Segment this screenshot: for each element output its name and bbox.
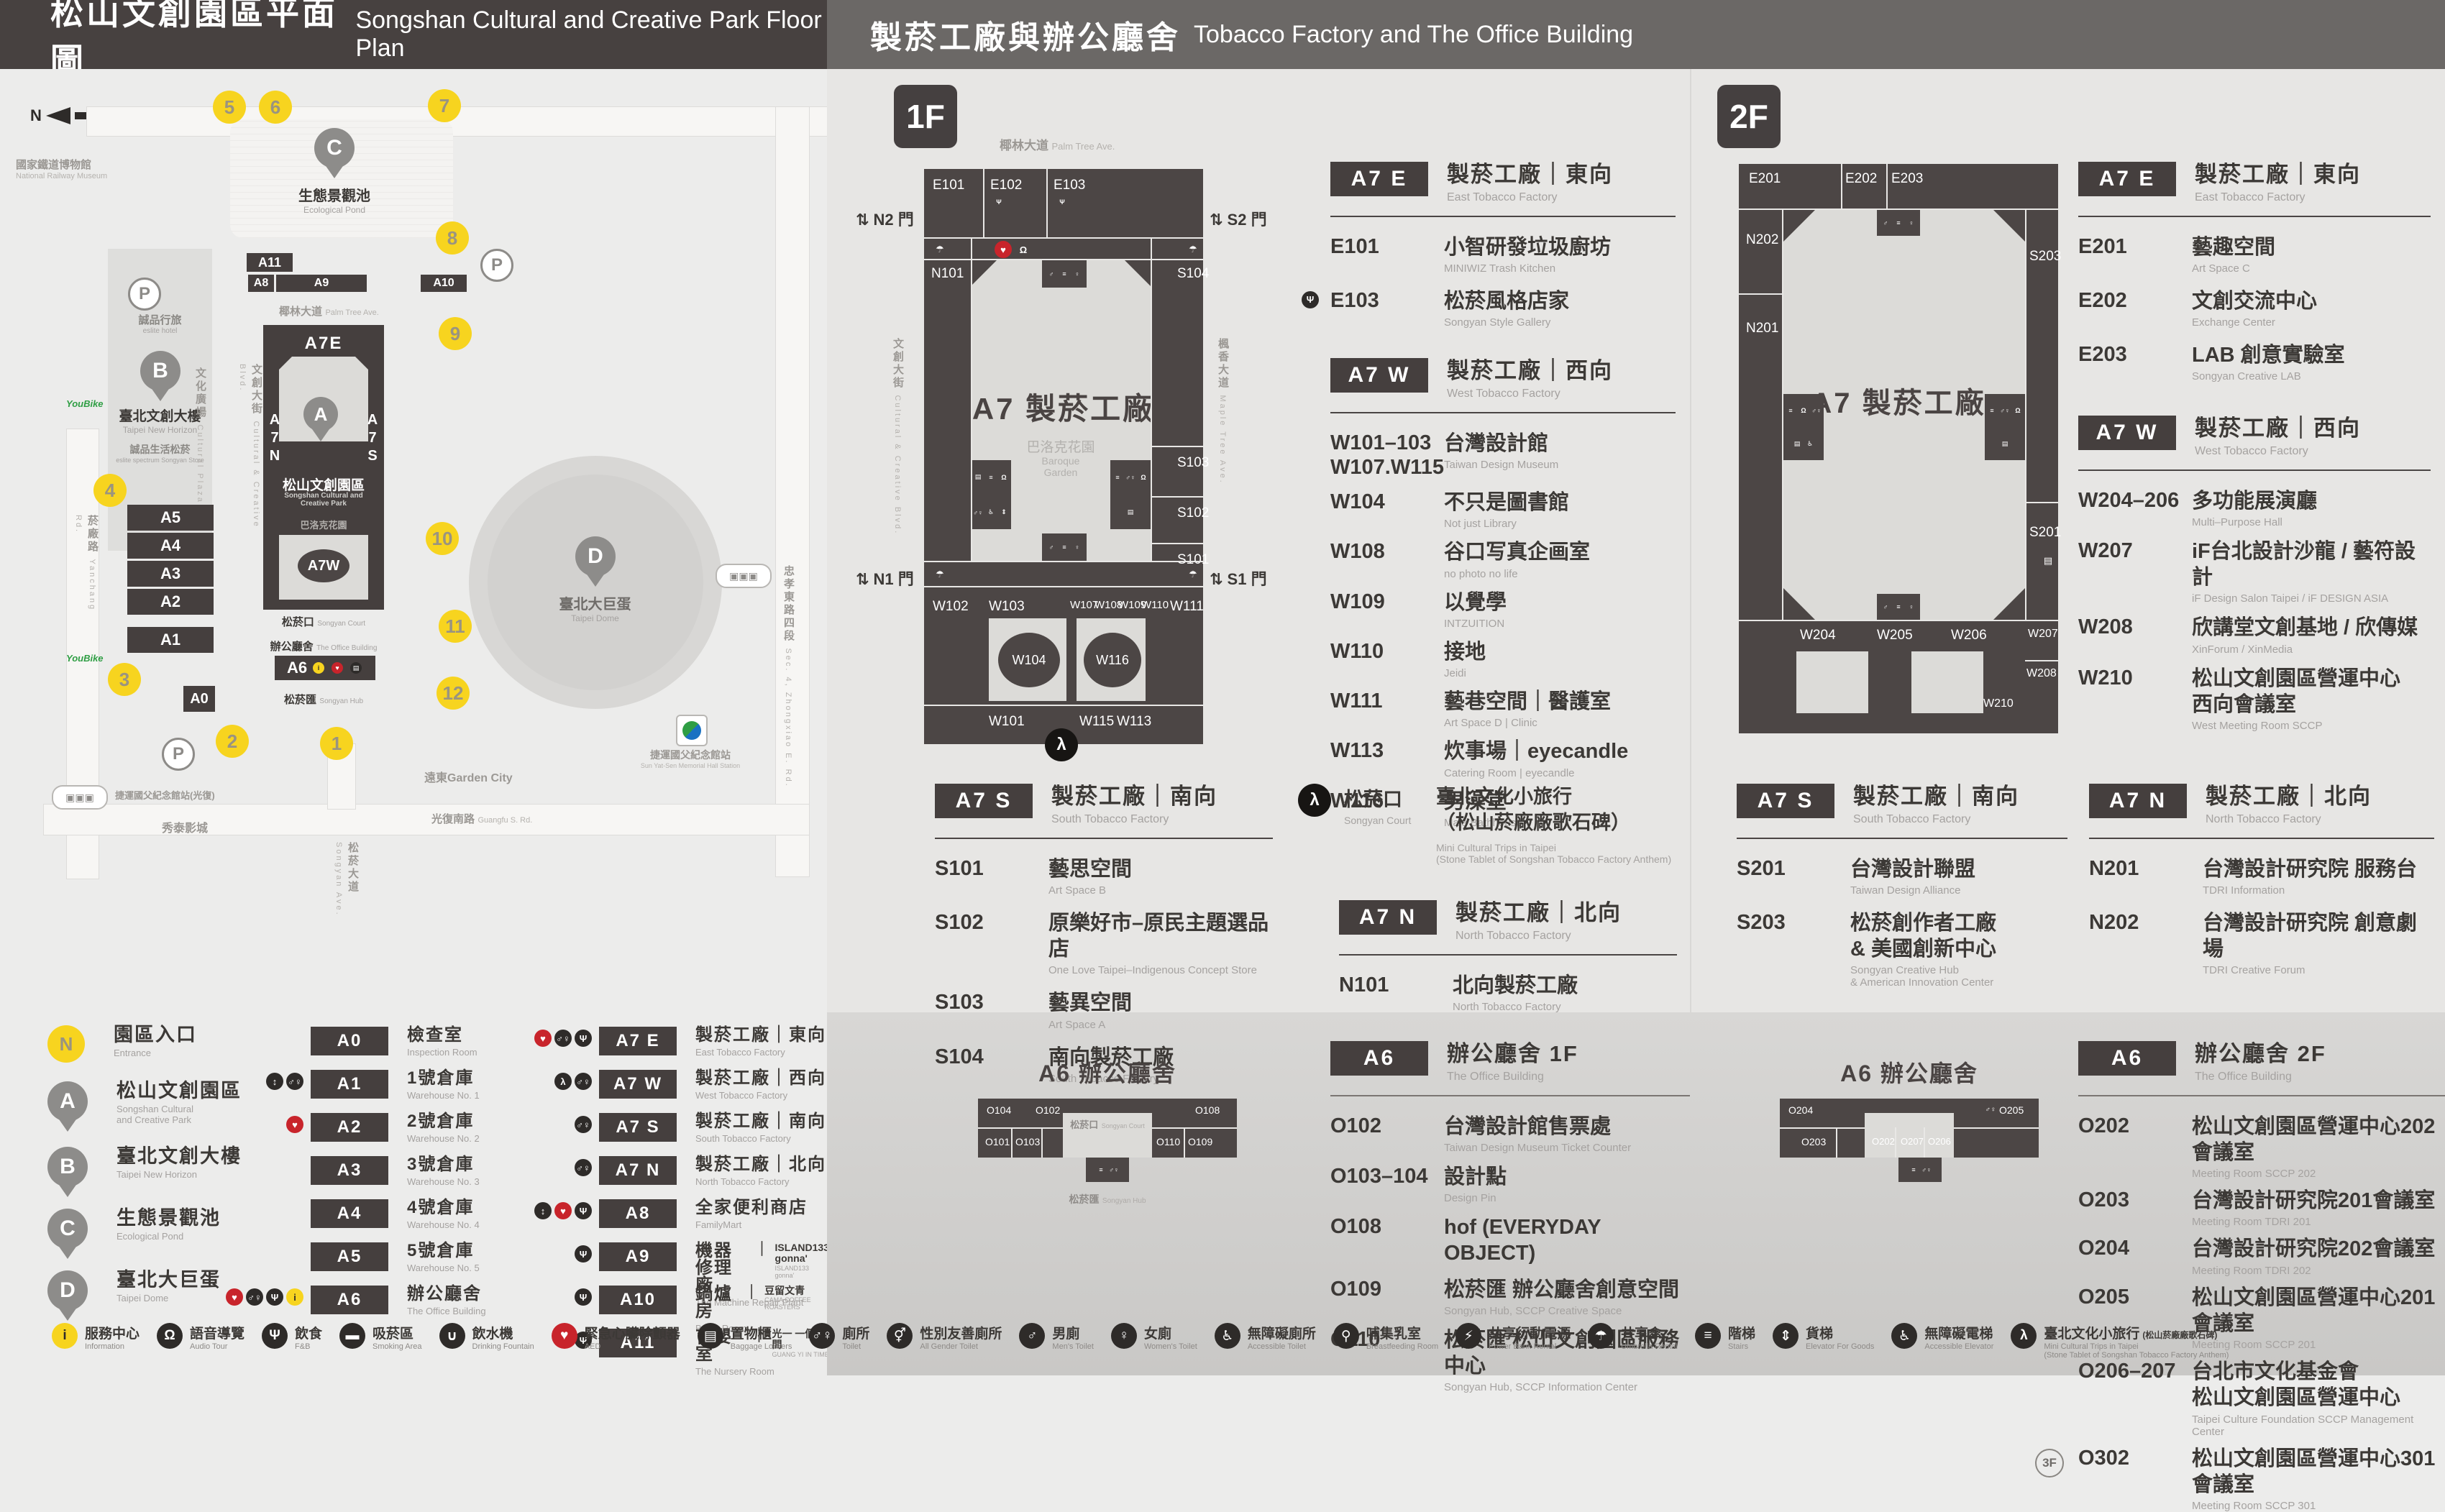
umbrella-icon: ☂ — [931, 566, 949, 583]
songyankou-line2: （松山菸廠廠歌石碑） — [1436, 812, 1630, 833]
building-name-en: Inspection Room — [407, 1047, 477, 1058]
legend-building-row: Ψ A10 鍋爐房 ｜ 豆留文青 CAMA COFFEE ROASTERS Bo… — [599, 1286, 827, 1321]
room-s101: S101 — [1177, 552, 1209, 568]
aed-icon: ♥ — [534, 1030, 552, 1047]
section-badge: A7 N — [1339, 900, 1437, 935]
facility-icon: ♂♀ — [808, 1323, 836, 1349]
room-code: O205 — [2078, 1285, 2192, 1310]
room-w206: W206 — [1951, 628, 1987, 643]
building-a6: A6 i ♥ ▤ — [275, 656, 375, 680]
section-badge: A7 N — [2089, 784, 2187, 818]
entrance-4: 4 — [93, 474, 127, 507]
room-name-en: Multi–Purpose Hall — [2192, 516, 2317, 528]
room-name-en: Meeting Room TDRI 202 — [2192, 1265, 2435, 1277]
building-name-zh: 4號倉庫 — [407, 1199, 474, 1217]
east-core-stub: ≡♂♀ Ω▤ — [1110, 460, 1151, 529]
parking-icon: P — [128, 278, 161, 311]
facility-en: All Gender Toilet — [920, 1342, 1002, 1351]
aed-icon: ♥ — [995, 241, 1012, 258]
room-name-en: TDRI Creative Forum — [2203, 964, 2434, 976]
floor-prefix-badge: 3F — [2035, 1449, 2064, 1477]
building-a1: A1 — [127, 627, 214, 653]
locker-icon: ▤ — [972, 472, 984, 483]
brand-zh: ISLAND133 gonna' — [775, 1242, 827, 1265]
legend-en: Taipei New Horizon — [116, 1169, 242, 1180]
audio-icon: Ω — [157, 1323, 183, 1349]
toilet-icon: ♂♀ — [1125, 472, 1136, 483]
songyan-court-icon: λ — [1298, 784, 1331, 817]
building-a9: A9 — [276, 275, 367, 292]
pin-d-legend: D — [47, 1270, 88, 1311]
row-icons: ♥♂♀Ψi — [224, 1288, 305, 1306]
section-badge: A7 W — [2078, 416, 2176, 450]
building-name-en: North Tobacco Factory — [695, 1176, 826, 1187]
legend-building-row: A0 檢查室 ｜ Inspection Room — [311, 1027, 526, 1063]
aed-icon: ♥ — [226, 1288, 243, 1306]
building-name-zh: 鍋爐房 — [695, 1286, 739, 1320]
floor-plan-poster: { "icon_glyphs":{"info":"i","audio":"Ω",… — [0, 0, 2445, 1375]
row-icons: ↕♥Ψ — [533, 1202, 593, 1219]
accessible-icon: ♿ — [1215, 1323, 1240, 1349]
building-code-badge: A3 — [311, 1156, 388, 1185]
audio-icon: Ω — [2012, 405, 2024, 416]
ccblvd-zh: 文創大街 — [892, 338, 904, 390]
row-icons: ↕♂♀ — [265, 1073, 305, 1090]
section-en: North Tobacco Factory — [2206, 813, 2372, 826]
goods-elevator-icon: ⇕ — [998, 507, 1010, 518]
a7w-oval: A7W — [298, 549, 349, 582]
section-badge: A6 — [2078, 1041, 2176, 1076]
building-a5: A5 — [127, 505, 214, 531]
facility-icon: ♥ — [550, 1323, 579, 1349]
room-name-zh: 藝異空間 — [1048, 990, 1132, 1016]
men-icon: ♂ — [1046, 541, 1057, 553]
pin-b: B — [140, 351, 180, 391]
toilet-icon: ♂♀ — [809, 1323, 835, 1349]
stairs-icon: ≡ — [1908, 1164, 1919, 1176]
entrance-8: 8 — [436, 221, 469, 255]
room-name-en: Meeting Room SCCP 201 — [2192, 1339, 2445, 1351]
legend-en: Songshan Cultural and Creative Park — [116, 1104, 242, 1125]
legend-building-row: λ♂♀ A7 W 製菸工廠｜西向 ｜ West Tobacco Factory — [599, 1070, 827, 1106]
palm-zh: 椰林大道 — [1000, 139, 1048, 152]
directory-row: W101–103 W107.W115 台灣設計館 Taiwan Design M… — [1330, 431, 1676, 481]
palm-en: Palm Tree Ave. — [1051, 141, 1115, 152]
men-icon: ♂ — [1019, 1323, 1045, 1349]
yanchang-rd-label: 菸廠路 Yanchang Rd. — [72, 515, 100, 630]
directory-row: W111 藝巷空間｜醫護室 Art Space D | Clinic — [1330, 689, 1676, 729]
directory-row: W204–206 多功能展演廳 Multi–Purpose Hall — [2078, 488, 2431, 528]
room-e101: E101 — [933, 178, 964, 193]
room-code: W108 — [1330, 539, 1444, 564]
facility-item: ♂ 男廁 Men's Toilet — [1018, 1323, 1094, 1351]
room-name-zh: 松山文創園區營運中心201會議室 — [2192, 1285, 2445, 1337]
stairs-icon: ≡ — [1986, 405, 1998, 416]
toilet-icon: ♂♀ — [1811, 405, 1822, 416]
section-f1-north: A7 N 製菸工廠｜北向 North Tobacco Factory N101 … — [1339, 900, 1677, 1013]
parking-icon: P — [480, 249, 513, 282]
facilities-legend: i 服務中心 Information Ω 語音導覽 Audio Tour Ψ 飲… — [50, 1323, 1582, 1360]
room-name-zh: 藝趣空間 — [2192, 234, 2275, 260]
section-f2-west: A7 W 製菸工廠｜西向 West Tobacco Factory W204–2… — [2078, 416, 2431, 732]
plan-1f-title: A7 製菸工廠 — [934, 385, 1193, 429]
facility-icon: ▤ — [696, 1323, 725, 1349]
pond-label: 生態景觀池 Ecological Pond — [273, 184, 396, 215]
south-lobby-stub: ♂≡♀ — [1877, 594, 1920, 620]
building-name-en: The Nursery Room — [695, 1366, 827, 1375]
room-name-en: Songyan Creative LAB — [2192, 370, 2345, 382]
goods-elevator-icon: ⇕ — [1773, 1323, 1799, 1349]
section-badge: A7 E — [2078, 162, 2176, 196]
songyan-ave-en: Songyan Ave. — [334, 842, 343, 917]
floor-1f-badge: 1F — [894, 85, 957, 148]
locker-icon: ▤ — [1125, 507, 1136, 518]
trips-icon: λ — [2011, 1323, 2037, 1349]
room-e201: E201 — [1749, 171, 1781, 187]
brand-en: CAMA COFFEE ROASTERS — [764, 1296, 827, 1311]
room-o108: O108 — [1195, 1104, 1220, 1116]
room-name-en: Not just Library — [1444, 518, 1569, 530]
entrance-7: 7 — [428, 89, 461, 122]
west-core-stub: ≡Ω ♂♀▤ ♿ — [1783, 394, 1824, 460]
section-badge: A6 — [1330, 1041, 1428, 1076]
parking-icon: P — [162, 738, 195, 771]
park-map-panel: N 國家鐵道博物館 National Railway Museum C 生態景觀… — [0, 69, 827, 1375]
facility-zh: 飲食 — [295, 1323, 322, 1342]
building-code-badge: A7 W — [599, 1070, 677, 1099]
building-name-zh: 製菸工廠｜北向 — [695, 1156, 826, 1173]
building-a3: A3 — [127, 561, 214, 587]
pin-d: D — [575, 536, 616, 577]
guangfu-rd-label: 光復南路 Guangfu S. Rd. — [431, 811, 532, 826]
row-icons: ♥♂♀Ψ — [533, 1030, 593, 1047]
facility-zh: 臺北文化小旅行 — [2044, 1323, 2139, 1342]
facility-en: Women's Toilet — [1144, 1342, 1197, 1351]
room-s103: S103 — [1177, 455, 1209, 471]
facility-zh: 緊急心臟除顫器 — [585, 1323, 680, 1342]
ccblvd-en: Cultural & Creative Blvd. — [893, 395, 902, 535]
entrance-12: 12 — [437, 677, 470, 710]
room-w104-oval: W104 — [998, 633, 1060, 687]
songyan-ave-zh: 松菸大道 — [347, 842, 359, 894]
railway-museum-label: 國家鐵道博物館 National Railway Museum — [16, 157, 124, 180]
divider: ｜ — [744, 1286, 759, 1300]
room-name-zh: hof (EVERYDAY OBJECT) — [1444, 1214, 1690, 1267]
section-badge: A7 S — [1737, 784, 1834, 818]
room-code: E203 — [2078, 342, 2192, 367]
legend-zh: 臺北大巨蛋 — [116, 1270, 221, 1290]
room-name-en: Songyan Hub, SCCP Information Center — [1444, 1381, 1690, 1393]
room-name-zh: 不只是圖書館 — [1444, 490, 1569, 516]
a6-2f-plan: O204 O203 O202 O207 O206 O205 ♂♀ — [1780, 1099, 2039, 1158]
room-name-en: One Love Taipei–Indigenous Concept Store — [1048, 964, 1273, 976]
songyankou-line1: 臺北文化小旅行 — [1436, 786, 1572, 807]
facility-icon: ⇕ — [1771, 1323, 1800, 1349]
women-icon: ♀ — [1071, 541, 1083, 553]
stairs-icon: ≡ — [1893, 601, 1904, 613]
building-code-badge: A7 N — [599, 1156, 677, 1185]
a7n-label: A 7 N — [268, 411, 282, 465]
garden-zh: 巴洛克花園 — [971, 436, 1151, 456]
room-name-zh: LAB 創意實驗室 — [2192, 342, 2345, 368]
toilet-icon: ♂♀ — [1921, 1164, 1932, 1176]
directory-row: O108 hof (EVERYDAY OBJECT) — [1330, 1214, 1690, 1267]
section-zh: 製菸工廠｜南向 — [1853, 784, 2019, 810]
legend-col1: A0 檢查室 ｜ Inspection Room ↕♂♀ A1 1號倉庫 ｜ — [311, 1027, 526, 1321]
water-icon: ∪ — [439, 1323, 465, 1349]
room-name-en: Exchange Center — [2192, 316, 2317, 329]
park-en: Songshan Cultural and Creative Park — [263, 492, 384, 508]
room-name-en: Catering Room | eyecandle — [1444, 767, 1628, 779]
room-o103: O103 — [1015, 1136, 1040, 1147]
w204-court — [1796, 651, 1868, 713]
room-name-zh: 台灣設計研究院 服務台 — [2203, 856, 2417, 882]
row-icons: ♂♀ — [573, 1159, 593, 1176]
mrt-exit-label: 捷運國父紀念館站(光復) — [115, 788, 215, 802]
road-guangfu — [43, 804, 810, 835]
room-code: E103 — [1330, 288, 1444, 313]
audio-icon: Ω — [1138, 472, 1149, 483]
section-f1-west: A7 W 製菸工廠｜西向 West Tobacco Factory W101–1… — [1330, 358, 1676, 829]
toilet-icon: ♂♀ — [575, 1116, 592, 1133]
room-name-zh: 台灣設計館 — [1444, 431, 1558, 457]
building-a11: A11 — [247, 253, 293, 272]
accessible-elevator-icon: ♿ — [1891, 1323, 1917, 1349]
building-name-zh: 辦公廳舍 — [407, 1286, 482, 1303]
legend-col2: ♥♂♀Ψ A7 E 製菸工廠｜東向 ｜ East Tobacco Factory… — [599, 1027, 827, 1365]
section-zh: 製菸工廠｜北向 — [2206, 784, 2372, 810]
toilet-icon: ♂♀ — [286, 1073, 303, 1090]
facility-en: Mini Cultural Trips in Taipei — [2044, 1342, 2229, 1351]
palm-en: Palm Tree Ave. — [325, 308, 378, 317]
umbrella-icon: ☂ — [931, 241, 949, 258]
facility-item: ≡ 階梯 Stairs — [1694, 1323, 1755, 1351]
zhongxiao-rd-label: 忠孝東路四段 Sec. 4, Zhongxiao E. Rd. — [781, 565, 796, 802]
directory-row: O103–104 設計點 Design Pin — [1330, 1164, 1690, 1204]
room-e102: E102 — [990, 178, 1022, 193]
room-code: W110 — [1330, 639, 1444, 664]
facility-item: ♀ 女廁 Women's Toilet — [1110, 1323, 1197, 1351]
facility-zh: 飲水機 — [472, 1323, 513, 1342]
room-e203: E203 — [1891, 171, 1923, 187]
room-name-en: Meeting Room SCCP 301 — [2192, 1500, 2445, 1512]
room-name-zh: 多功能展演廳 — [2192, 488, 2317, 514]
room-code: S203 — [1737, 910, 1850, 935]
directory-row: S203 松菸創作者工廠 & 美國創新中心 Songyan Creative H… — [1737, 910, 2067, 989]
building-name-zh: 1號倉庫 — [407, 1070, 474, 1087]
facility-en: Audio Tour — [190, 1342, 244, 1351]
aed-icon: ♥ — [552, 1323, 577, 1349]
section-en: West Tobacco Factory — [1447, 388, 1613, 400]
all-gender-icon: ⚥ — [887, 1323, 913, 1349]
facility-zh: 性別友善廁所 — [920, 1323, 1002, 1342]
court-zh: 松菸口 — [1070, 1119, 1098, 1130]
directory-row: O204 台灣設計研究院202會議室 Meeting Room TDRI 202 — [2078, 1236, 2445, 1276]
umbrella-icon: ☂ — [1184, 566, 1202, 583]
directory-row: E101 小智研發垃圾廚坊 MINIWIZ Trash Kitchen — [1330, 234, 1676, 275]
row-icons: λ♂♀ — [553, 1073, 593, 1090]
divider: ｜ — [755, 1242, 769, 1257]
building-name-zh: 製菸工廠｜東向 — [695, 1027, 826, 1044]
facility-zh: 階梯 — [1728, 1323, 1755, 1342]
directory-row: W104 不只是圖書館 Not just Library — [1330, 490, 1676, 530]
zhongxiao-zh: 忠孝東路四段 — [782, 565, 795, 643]
facility-item: ☂ 共享傘 Umbrella Rental — [1586, 1323, 1678, 1351]
room-name-en: MINIWIZ Trash Kitchen — [1444, 262, 1611, 275]
dome-en: Taipei Dome — [532, 613, 658, 623]
facility-icon: ♿ — [1890, 1323, 1919, 1349]
women-icon: ♀ — [1111, 1323, 1137, 1349]
room-code: W204–206 — [2078, 488, 2192, 513]
a7s-label: A 7 S — [365, 411, 380, 465]
info-icon: i — [286, 1288, 303, 1306]
maple-en: Maple Tree Ave. — [1218, 395, 1227, 484]
directory-row: W110 接地 Jeidi — [1330, 639, 1676, 679]
hub-label-1f: 松菸匯 Songyan Hub — [1043, 1192, 1172, 1206]
legend-building-row: Ψ A9 機器修理廠 ｜ ISLAND133 gonna' ISLAND133 … — [599, 1242, 827, 1278]
songyankou-en2: (Stone Tablet of Songshan Tobacco Factor… — [1436, 853, 1671, 865]
brand-zh: 豆留文青 — [764, 1286, 827, 1296]
facility-en: Smoking Area — [373, 1342, 421, 1351]
entrance-10: 10 — [426, 522, 459, 555]
women-icon: ♀ — [1906, 601, 1917, 613]
section-zh: 製菸工廠｜南向 — [1051, 784, 1217, 810]
room-name-en: Taiwan Design Museum Ticket Counter — [1444, 1142, 1631, 1154]
facility-item: ♥ 緊急心臟除顫器 AED — [550, 1323, 680, 1351]
legend-building-row: A5 5號倉庫 ｜ Warehouse No. 5 — [311, 1242, 526, 1278]
plan-2f: E201 E202 E203 A7 製菸工廠 N202 N201 S203 S2… — [1739, 164, 2058, 733]
room-name-en: Art Space D | Clinic — [1444, 717, 1611, 729]
room-name-zh: 松菸創作者工廠 & 美國創新中心 — [1850, 910, 1996, 963]
room-name-zh: 松山文創園區營運中心 西向會議室 — [2192, 666, 2400, 718]
building-a2: A2 — [127, 589, 214, 615]
cultural-plaza-en: Cultural Plaza — [196, 424, 204, 503]
building-code-badge: A10 — [599, 1286, 677, 1314]
room-name-zh: 小智研發垃圾廚坊 — [1444, 234, 1611, 260]
section-zh: 製菸工廠｜西向 — [2195, 416, 2361, 441]
room-name-en: Songyan Style Gallery — [1444, 316, 1569, 329]
a6-2f-stub: ≡♂♀ — [1898, 1158, 1942, 1182]
court-en: Songyan Court — [1102, 1122, 1145, 1130]
songyankou-en: Songyan Court — [1344, 815, 1423, 826]
palm-zh: 椰林大道 — [279, 306, 322, 318]
facility-item: ▤ 置物櫃 Baggage Lockers — [696, 1323, 792, 1351]
facility-zh: 貨梯 — [1806, 1323, 1833, 1342]
page-title-en: Songshan Cultural and Creative Park Floo… — [355, 6, 827, 63]
facility-en: Accessible Elevator — [1924, 1342, 1993, 1351]
section-en: West Tobacco Factory — [2195, 445, 2361, 458]
plan-1f: E101 E102 Ψ E103 Ψ A7 製菸工廠 巴洛克花園 Baroque… — [924, 169, 1203, 744]
facility-zh: 語音導覽 — [190, 1323, 244, 1342]
room-code: O206–207 — [2078, 1359, 2192, 1384]
facility-en: Drinking Fountain — [472, 1342, 534, 1351]
floor-2f-badge: 2F — [1717, 85, 1781, 148]
maple-ave-1f: 楓香大道 Maple Tree Ave. — [1215, 338, 1230, 575]
building-name-en: South Tobacco Factory — [695, 1133, 826, 1144]
women-icon: ♀ — [1071, 268, 1083, 280]
audio-icon: Ω — [1015, 241, 1032, 258]
room-name-en: Songyan Creative Hub & American Innovati… — [1850, 964, 1996, 989]
directory-row: S103 藝異空間 Art Space A — [935, 990, 1273, 1030]
food-icon: Ψ — [575, 1245, 592, 1263]
facility-item: λ 臺北文化小旅行 (松山菸廠廠歌石碑) Mini Cultural Trips… — [2009, 1323, 2229, 1360]
east-core-stub: ≡♂♀ Ω▤ — [1985, 394, 2025, 460]
directory-row: E202 文創交流中心 Exchange Center — [2078, 288, 2431, 329]
directory-row: W208 欣講堂文創基地 / 欣傳媒 XinForum / XinMedia — [2078, 615, 2431, 655]
directory-row: Ψ E103 松菸風格店家 Songyan Style Gallery — [1330, 288, 1676, 329]
section-f1-east: A7 E 製菸工廠｜東向 East Tobacco Factory E101 小… — [1330, 162, 1676, 329]
building-code-badge: A9 — [599, 1242, 677, 1271]
eslite-hotel-zh: 誠品行旅 — [108, 312, 212, 327]
facility-icon: ▬ — [338, 1323, 367, 1349]
facility-icon: ⚲ — [1332, 1323, 1361, 1349]
facility-en: Power Bank Rental — [1489, 1342, 1571, 1351]
room-name-en: Art Space C — [2192, 262, 2275, 275]
facility-en: AED — [585, 1342, 680, 1351]
entrance-2: 2 — [216, 725, 249, 758]
facility-zh2: (松山菸廠廠歌石碑) — [2142, 1329, 2217, 1341]
section-badge: A7 S — [935, 784, 1033, 818]
directory-row: W113 炊事場｜eyecandle Catering Room | eyeca… — [1330, 738, 1676, 779]
facility-en: Elevator For Goods — [1806, 1342, 1874, 1351]
facility-item: ⚲ 哺集乳室 Breastfeeding Room — [1332, 1323, 1438, 1351]
facility-item: ♿ 無障礙廁所 Accessible Toilet — [1213, 1323, 1316, 1351]
guangfu-zh: 光復南路 — [431, 813, 475, 825]
hub-en: Songyan Hub — [319, 697, 363, 705]
facility-zh: 廁所 — [842, 1323, 869, 1342]
room-name-zh: 松菸匯 辦公廳舍創意空間 — [1444, 1277, 1679, 1303]
court-zh: 松菸口 — [282, 616, 314, 628]
room-name-zh: 原樂好市–原民主題選品店 — [1048, 910, 1273, 963]
gate-s1: ⇅ S1 門 — [1210, 567, 1267, 590]
room-code: O302 — [2078, 1446, 2192, 1471]
section-zh: 辦公廳舍 1F — [1447, 1041, 1578, 1067]
facility-zh: 吸菸區 — [373, 1323, 413, 1342]
section-en: East Tobacco Factory — [2195, 191, 2361, 204]
info-icon: i — [313, 662, 324, 674]
facility-icon: ♿ — [1213, 1323, 1242, 1349]
building-name-zh: 製菸工廠｜西向 — [695, 1070, 826, 1087]
mrt-zh: 捷運國父紀念館站 — [618, 748, 762, 762]
room-code: E101 — [1330, 234, 1444, 260]
room-name-zh: 松菸風格店家 — [1444, 288, 1569, 314]
aed-icon: ♥ — [286, 1116, 303, 1133]
building-code-badge: A4 — [311, 1199, 388, 1228]
room-o203: O203 — [1801, 1136, 1826, 1147]
stairs-icon: ≡ — [1695, 1323, 1721, 1349]
room-code: N101 — [1339, 973, 1453, 998]
pin-a: A — [303, 397, 338, 431]
room-n101: N101 — [931, 266, 964, 282]
building-name-zh: 3號倉庫 — [407, 1156, 474, 1173]
room-name-en: Taipei Culture Foundation SCCP Managemen… — [2192, 1414, 2445, 1438]
entrance-11: 11 — [439, 610, 472, 643]
row-icons: Ψ — [573, 1288, 593, 1306]
toilet-icon: ♂♀ — [972, 507, 984, 518]
bus-stop-icon: ▣▣▣ — [716, 564, 772, 588]
ccblvd-label-map: 文創大街 Cultural & Creative Blvd. — [236, 364, 264, 529]
room-w111: W111 — [1170, 599, 1204, 615]
gate-n1: ⇅ N1 門 — [856, 567, 914, 590]
directory-row: S101 藝思空間 Art Space B — [935, 856, 1273, 897]
food-icon: Ψ — [575, 1030, 592, 1047]
building-name-zh: 檢查室 — [407, 1027, 463, 1044]
building-name-zh: 2號倉庫 — [407, 1113, 474, 1130]
room-w210: W210 — [1983, 697, 2014, 710]
facility-zh: 男廁 — [1052, 1323, 1079, 1342]
a6-2f-plan-title: A6 辦公廳舍 — [1794, 1055, 2024, 1089]
room-w103: W103 — [989, 599, 1025, 615]
